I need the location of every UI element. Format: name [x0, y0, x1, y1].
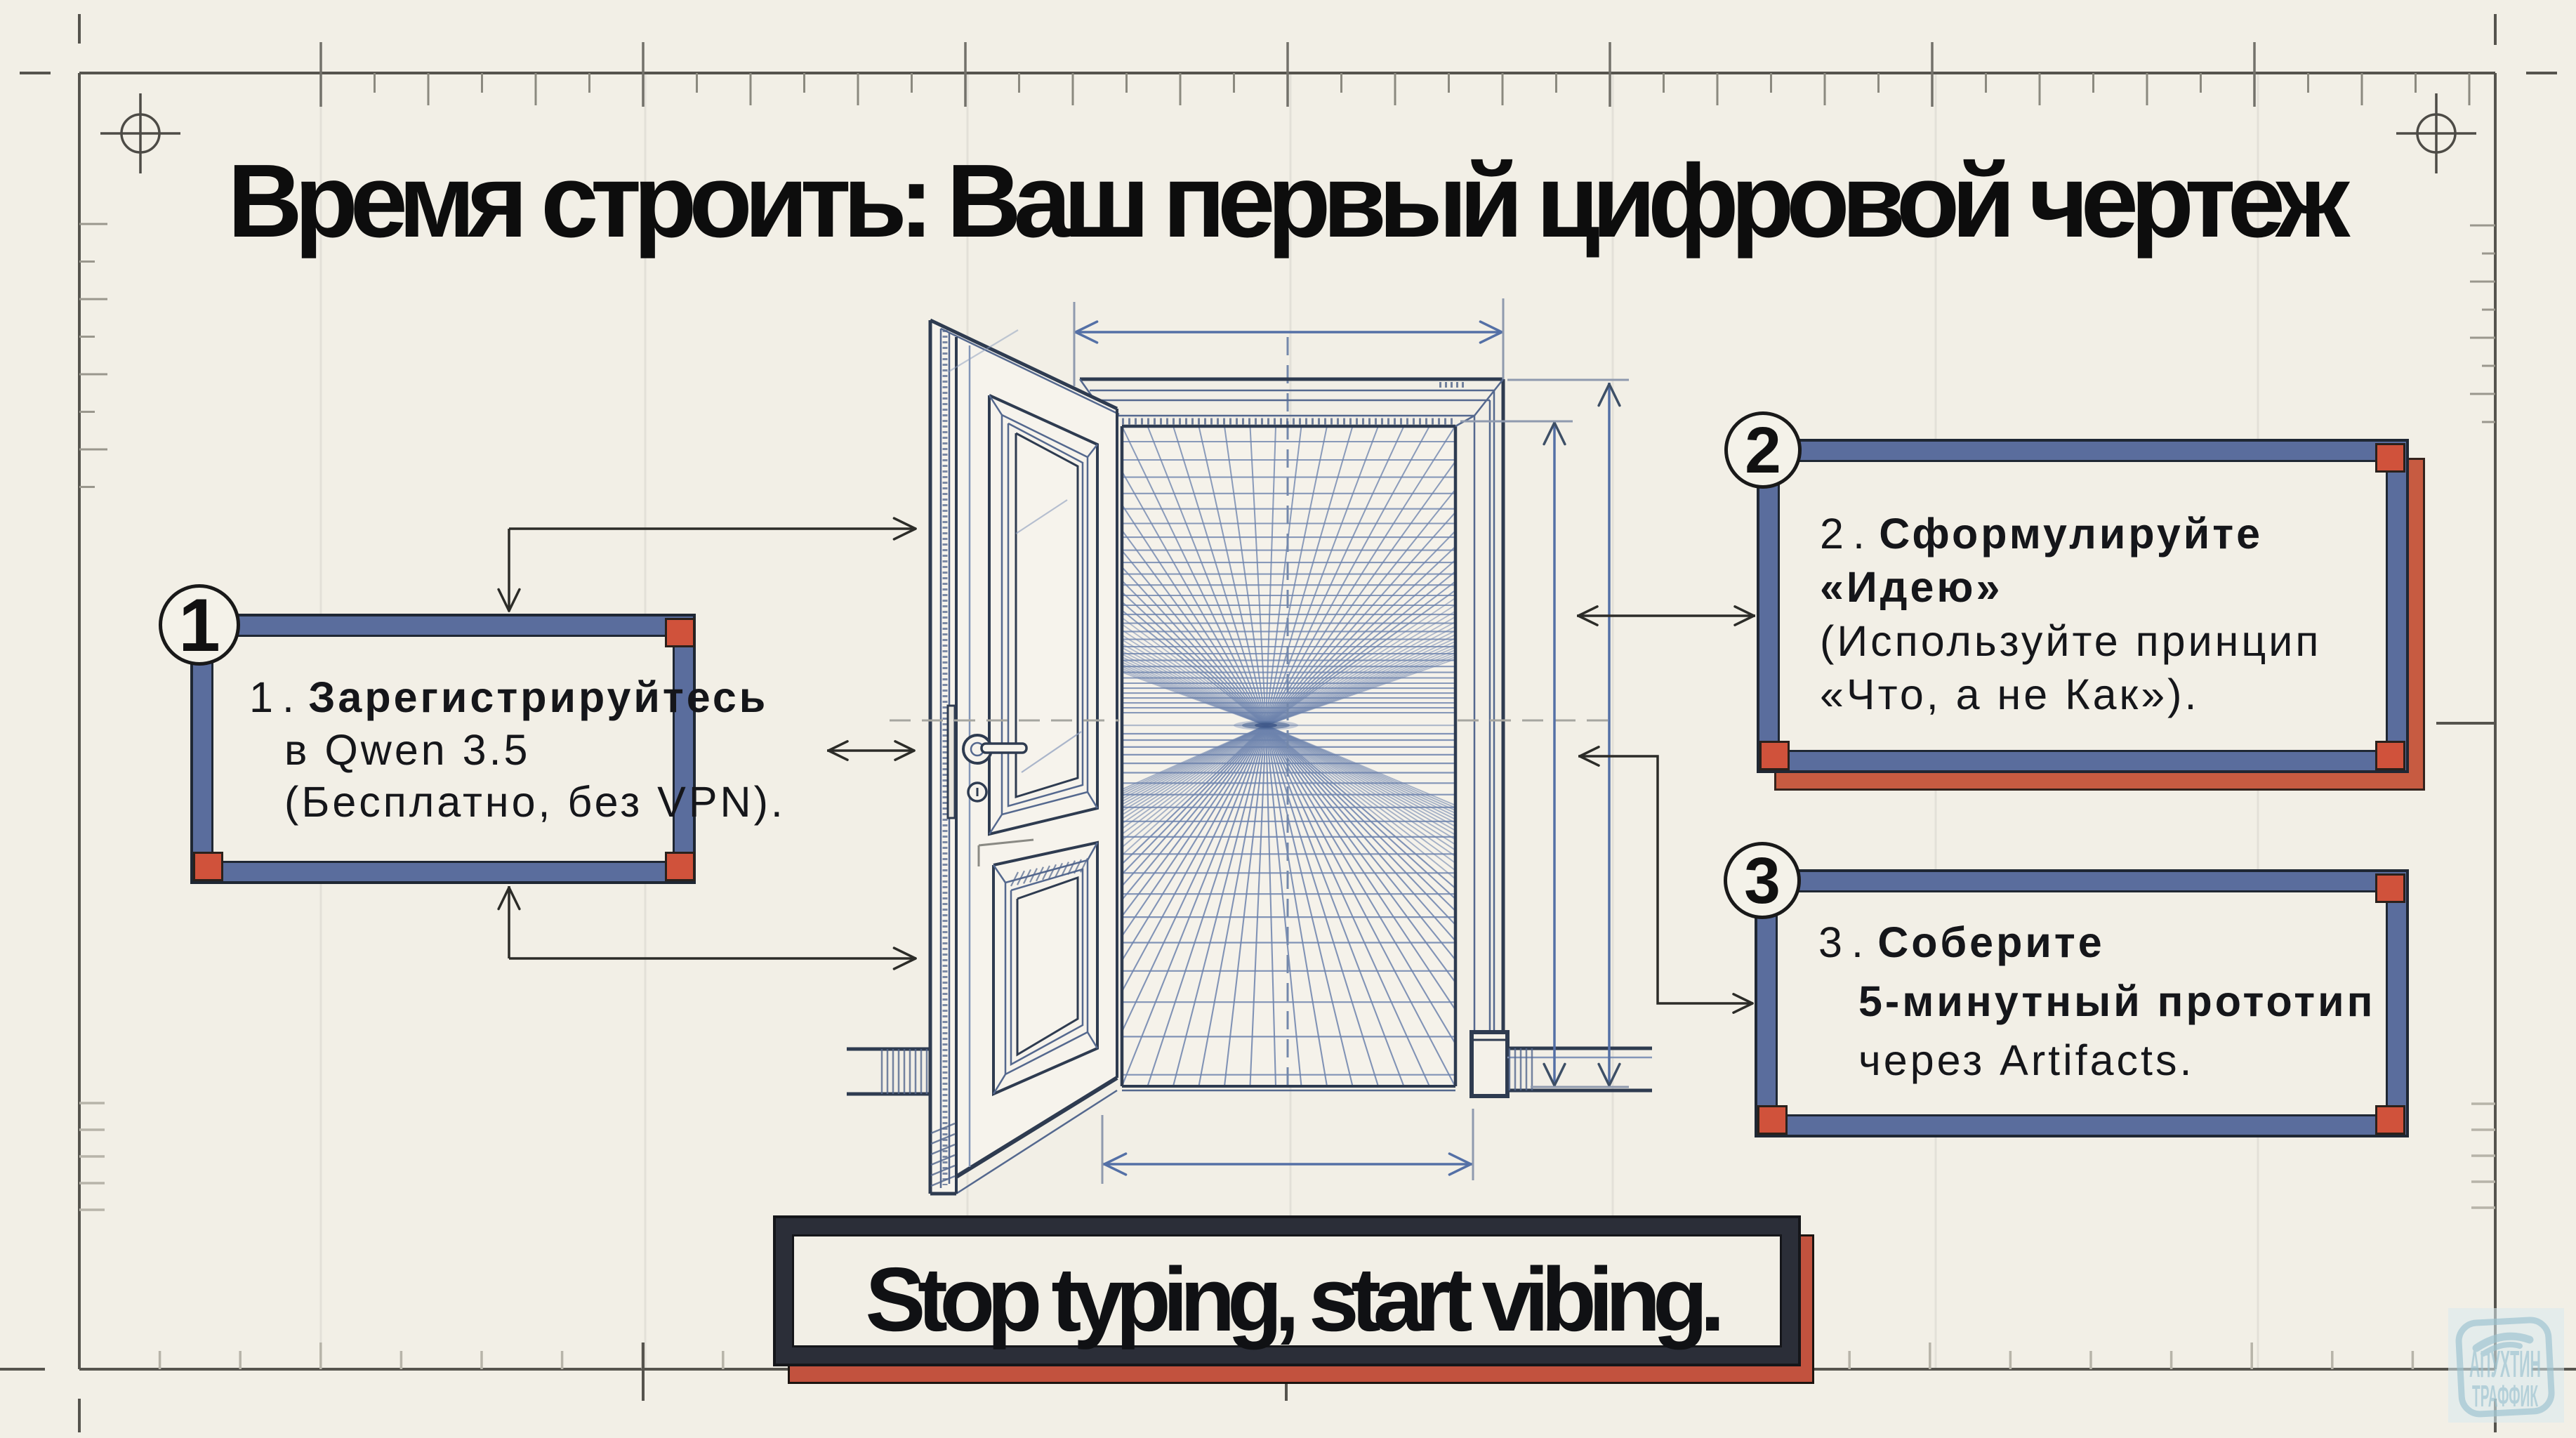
svg-text:ТРАФФИК: ТРАФФИК [2472, 1379, 2538, 1413]
